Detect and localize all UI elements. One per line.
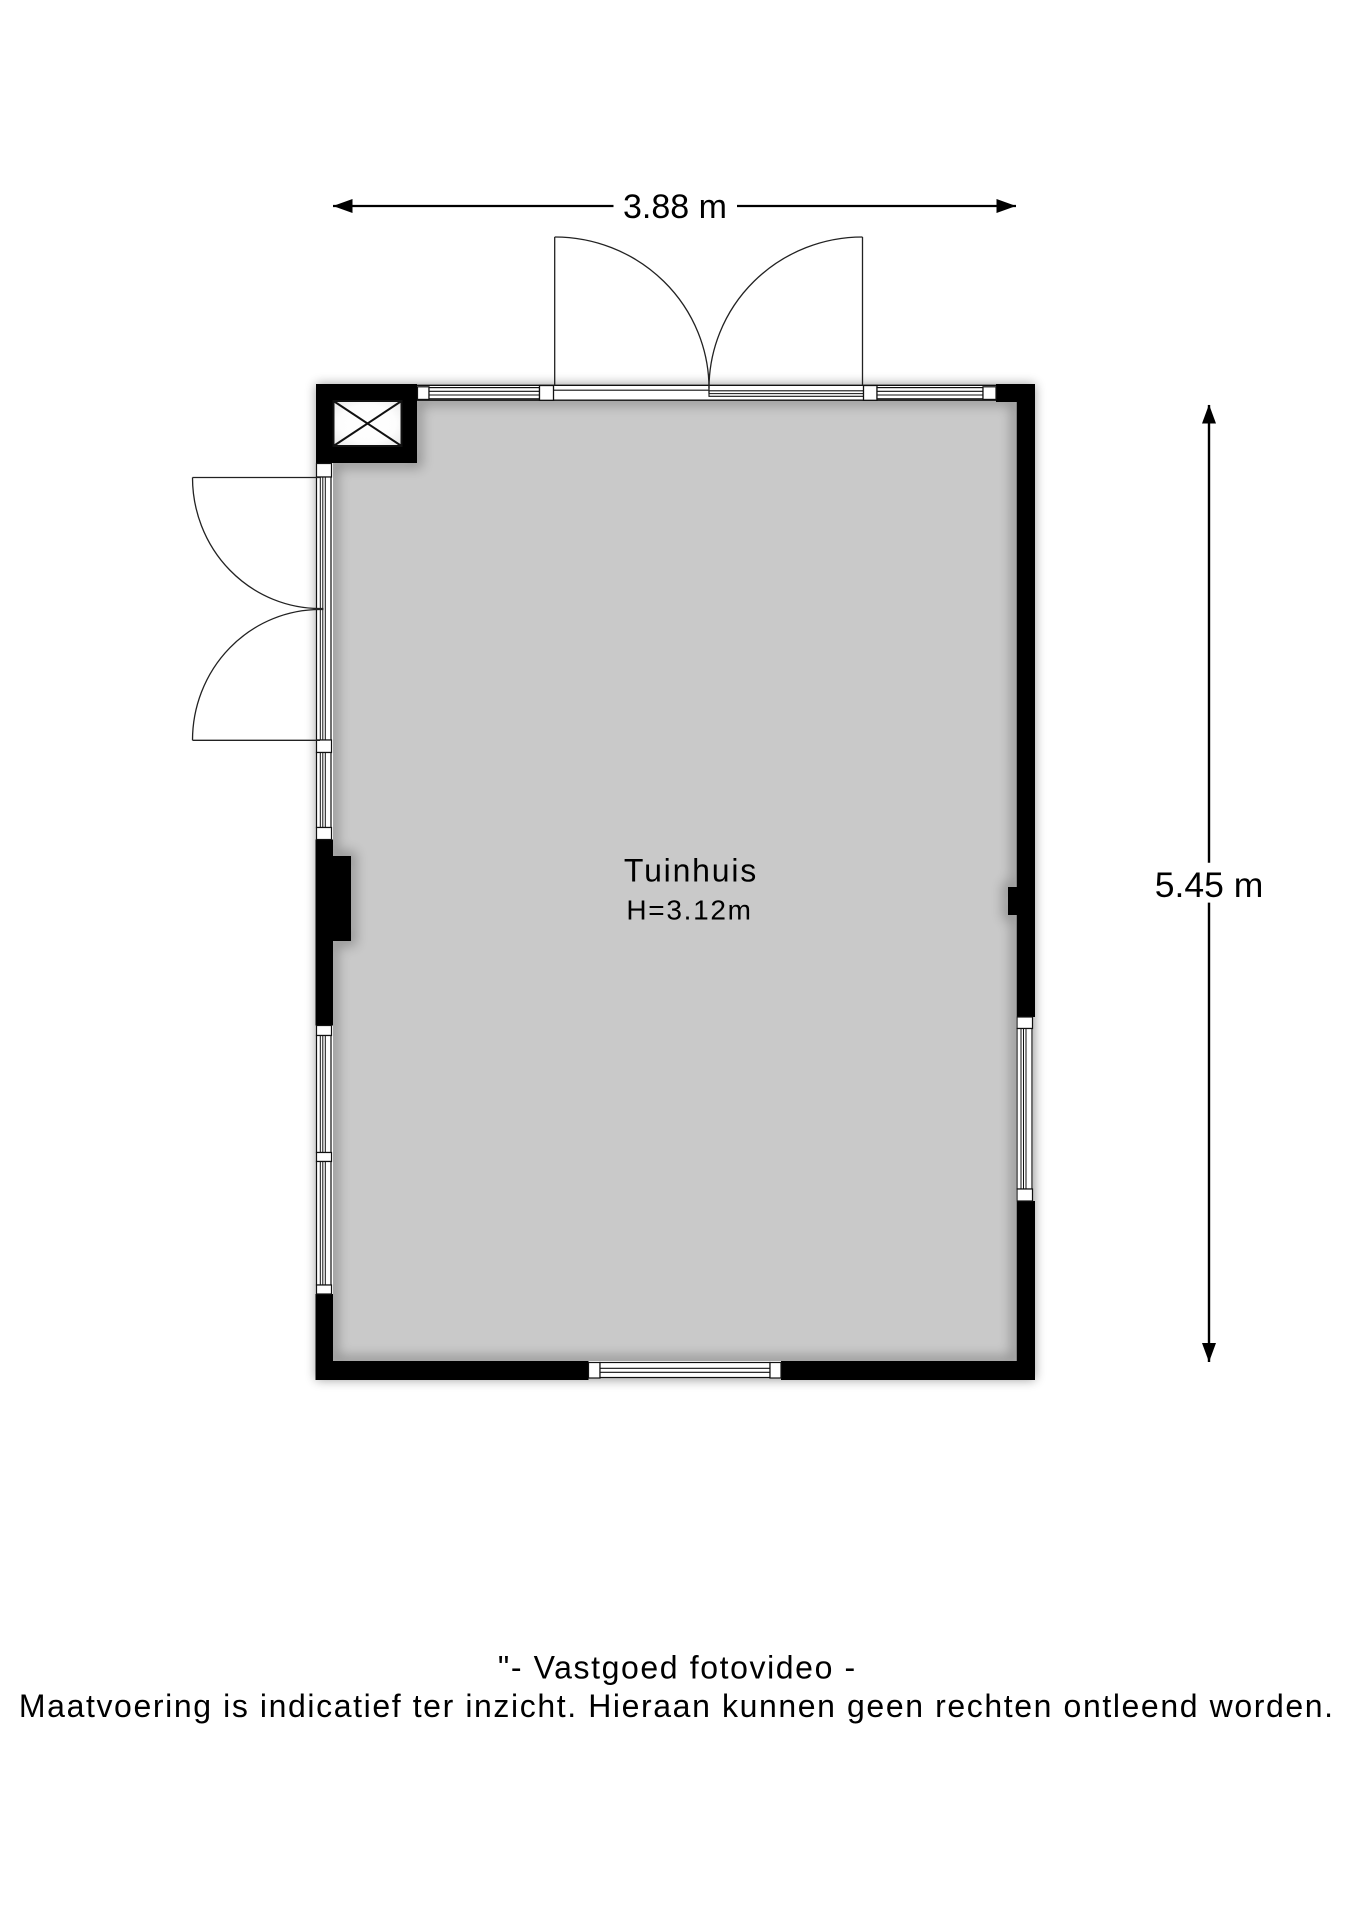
svg-text:Tuinhuis: Tuinhuis (624, 853, 758, 889)
svg-text:5.45 m: 5.45 m (1155, 865, 1264, 905)
svg-text:Maatvoering is indicatief ter: Maatvoering is indicatief ter inzicht. H… (19, 1688, 1335, 1724)
svg-text:H=3.12m: H=3.12m (626, 894, 752, 925)
svg-text:"- Vastgoed fotovideo -: "- Vastgoed fotovideo - (498, 1650, 857, 1686)
svg-text:3.88 m: 3.88 m (623, 188, 727, 226)
